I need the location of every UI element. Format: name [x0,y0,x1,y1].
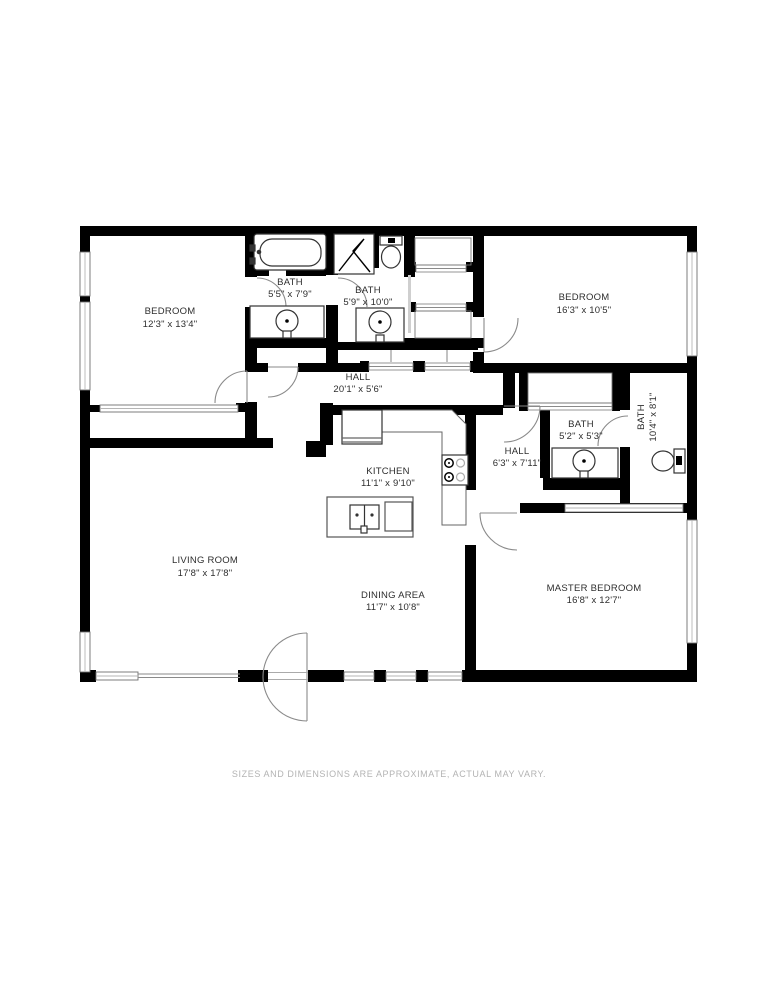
room-label-bath-1: BATH 5'5" x 7'9" [268,277,312,300]
svg-text:6'3" x 7'11": 6'3" x 7'11" [493,458,542,469]
window [80,302,90,390]
svg-text:17'8" x 17'8": 17'8" x 17'8" [178,568,233,579]
svg-text:BEDROOM: BEDROOM [145,306,196,317]
svg-text:BATH: BATH [568,419,594,430]
door-arc-hall-closet [268,367,298,397]
svg-text:12'3" x 13'4": 12'3" x 13'4" [143,319,198,330]
room-label-bath-2: BATH 5'9" x 10'0" [343,285,392,308]
svg-text:KITCHEN: KITCHEN [366,466,409,477]
sink-icon [552,448,618,478]
svg-text:BATH: BATH [355,285,381,296]
room-label-bedroom-2: BEDROOM 16'3" x 10'5" [557,292,612,316]
svg-text:5'5" x 7'9": 5'5" x 7'9" [268,289,312,300]
room-label-dining-area: DINING AREA 11'7" x 10'8" [361,590,425,613]
refrigerator-icon [342,410,382,444]
window [80,252,90,296]
door-arc-hall-2 [504,406,540,442]
door-arc-master-bedroom [480,513,517,550]
svg-text:HALL: HALL [505,446,530,457]
dishwasher-icon [385,502,412,531]
closet-slider [425,363,470,370]
kitchen-island-icon [327,497,413,537]
svg-text:5'9" x 10'0": 5'9" x 10'0" [343,297,392,308]
svg-text:BATH: BATH [636,404,647,430]
svg-text:MASTER BEDROOM: MASTER BEDROOM [547,583,642,594]
svg-text:5'2" x 5'3": 5'2" x 5'3" [559,431,603,442]
closet-slider [369,363,413,370]
svg-text:11'7" x 10'8": 11'7" x 10'8" [366,602,420,613]
room-label-master-bedroom: MASTER BEDROOM 16'8" x 12'7" [547,583,642,606]
window [344,672,374,680]
room-label-bath-4: BATH 10'4" x 8'1" [636,392,659,441]
window [687,520,697,643]
svg-text:LIVING ROOM: LIVING ROOM [172,555,238,566]
svg-text:16'3" x 10'5": 16'3" x 10'5" [557,305,612,316]
window [687,252,697,356]
svg-text:HALL: HALL [346,372,371,383]
svg-text:16'8" x 12'7": 16'8" x 12'7" [567,595,622,606]
sink-icon [250,306,324,338]
window [565,504,683,512]
svg-text:10'4" x 8'1": 10'4" x 8'1" [648,392,659,441]
toilet-icon [652,449,685,473]
shower-icon [334,234,374,274]
sink-icon [356,308,404,342]
window [80,632,90,672]
window [428,672,462,680]
window [386,672,416,680]
svg-text:BEDROOM: BEDROOM [559,292,610,303]
floor-plan: BEDROOM 12'3" x 13'4" BATH 5'5" x 7'9" B… [0,0,779,1008]
closet-slider [528,403,612,410]
disclaimer-text: SIZES AND DIMENSIONS ARE APPROXIMATE, AC… [232,769,546,779]
room-label-bath-3: BATH 5'2" x 5'3" [559,419,603,442]
front-door-arc [263,633,308,721]
room-label-kitchen: KITCHEN 11'1" x 9'10" [361,466,415,489]
room-label-hall-2: HALL 6'3" x 7'11" [493,446,542,469]
toilet-icon [380,236,402,268]
svg-text:20'1" x 5'6": 20'1" x 5'6" [333,384,382,395]
svg-text:11'1" x 9'10": 11'1" x 9'10" [361,478,415,489]
floor-plan-page: BEDROOM 12'3" x 13'4" BATH 5'5" x 7'9" B… [0,0,779,1008]
bathtub-icon [250,234,326,270]
door-arc-bedroom-1 [215,371,247,403]
room-label-living-room: LIVING ROOM 17'8" x 17'8" [172,555,238,579]
closet-outline [391,238,612,403]
closet-slider [416,265,466,272]
svg-text:DINING AREA: DINING AREA [361,590,425,601]
window [100,405,238,412]
closet-slider [416,304,466,311]
island-sink-icon [350,505,379,533]
room-label-hall-main: HALL 20'1" x 5'6" [333,372,382,395]
window [96,672,138,680]
svg-text:BATH: BATH [277,277,303,288]
door-arc-bedroom-2 [484,318,518,352]
room-label-bedroom-1: BEDROOM 12'3" x 13'4" [143,306,198,330]
screen-wall [138,674,240,678]
stove-icon [442,455,468,485]
